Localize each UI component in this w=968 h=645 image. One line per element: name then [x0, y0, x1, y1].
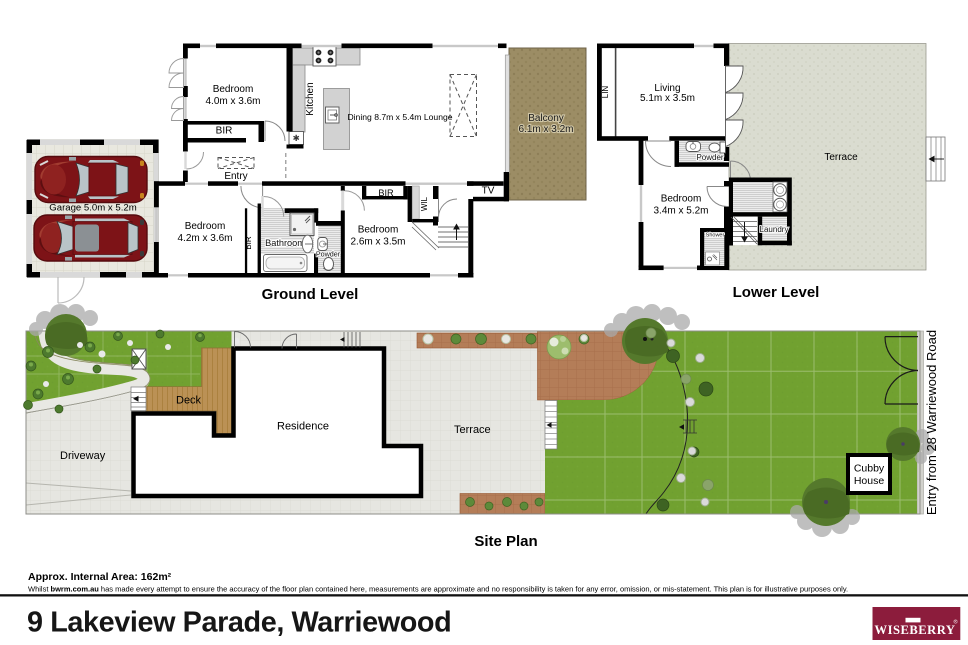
svg-text:House: House [854, 475, 885, 487]
svg-text:Bedroom: Bedroom [213, 84, 254, 95]
svg-text:Driveway: Driveway [60, 450, 106, 462]
svg-text:✱: ✱ [293, 133, 300, 143]
svg-text:Residence: Residence [277, 421, 329, 433]
svg-text:4.2m x 3.6m: 4.2m x 3.6m [177, 233, 232, 244]
svg-text:Bathroom: Bathroom [265, 238, 305, 248]
svg-text:Cubby: Cubby [854, 463, 885, 475]
svg-text:BIR: BIR [216, 126, 233, 137]
svg-text:9 Lakeview Parade, Warriewood: 9 Lakeview Parade, Warriewood [27, 607, 451, 639]
svg-text:Laundry: Laundry [760, 225, 789, 234]
svg-text:Site Plan: Site Plan [474, 533, 537, 550]
svg-text:BIR: BIR [244, 236, 253, 250]
svg-text:WIL: WIL [420, 196, 429, 211]
svg-text:Dining 8.7m x 5.4m Lounge: Dining 8.7m x 5.4m Lounge [347, 112, 452, 122]
svg-text:Lower Level: Lower Level [733, 284, 820, 301]
svg-text:Kitchen: Kitchen [305, 82, 316, 115]
svg-text:BIR: BIR [378, 188, 394, 198]
svg-text:3.4m x 5.2m: 3.4m x 5.2m [653, 206, 708, 217]
svg-text:Bedroom: Bedroom [661, 194, 702, 205]
svg-text:TV: TV [482, 186, 495, 197]
svg-text:Powder: Powder [696, 153, 723, 162]
svg-text:Balcony: Balcony [528, 113, 564, 124]
svg-text:Bedroom: Bedroom [185, 221, 226, 232]
svg-text:Ground Level: Ground Level [262, 286, 359, 303]
svg-text:6.1m x 3.2m: 6.1m x 3.2m [518, 124, 573, 135]
svg-text:5.1m x 3.5m: 5.1m x 3.5m [640, 93, 695, 104]
svg-text:Approx. Internal Area: 162m²: Approx. Internal Area: 162m² [28, 571, 172, 583]
svg-text:Terrace: Terrace [824, 152, 858, 163]
svg-text:Shower: Shower [706, 233, 725, 239]
svg-text:Terrace: Terrace [454, 424, 491, 436]
svg-text:Garage 5.0m x 5.2m: Garage 5.0m x 5.2m [49, 203, 136, 214]
svg-text:LIN: LIN [601, 86, 610, 99]
svg-text:Bedroom: Bedroom [358, 225, 399, 236]
svg-text:4.0m x 3.6m: 4.0m x 3.6m [205, 96, 260, 107]
svg-text:Deck: Deck [176, 395, 202, 407]
svg-text:Entry from 28 Warriewood Road: Entry from 28 Warriewood Road [924, 330, 939, 515]
svg-text:®: ® [954, 619, 958, 626]
svg-text:2.6m x 3.5m: 2.6m x 3.5m [350, 237, 405, 248]
svg-text:WISEBERRY: WISEBERRY [874, 623, 955, 637]
svg-text:Entry: Entry [224, 171, 247, 182]
svg-text:Whilst bwrm.com.au has made ev: Whilst bwrm.com.au has made every attemp… [28, 585, 848, 594]
